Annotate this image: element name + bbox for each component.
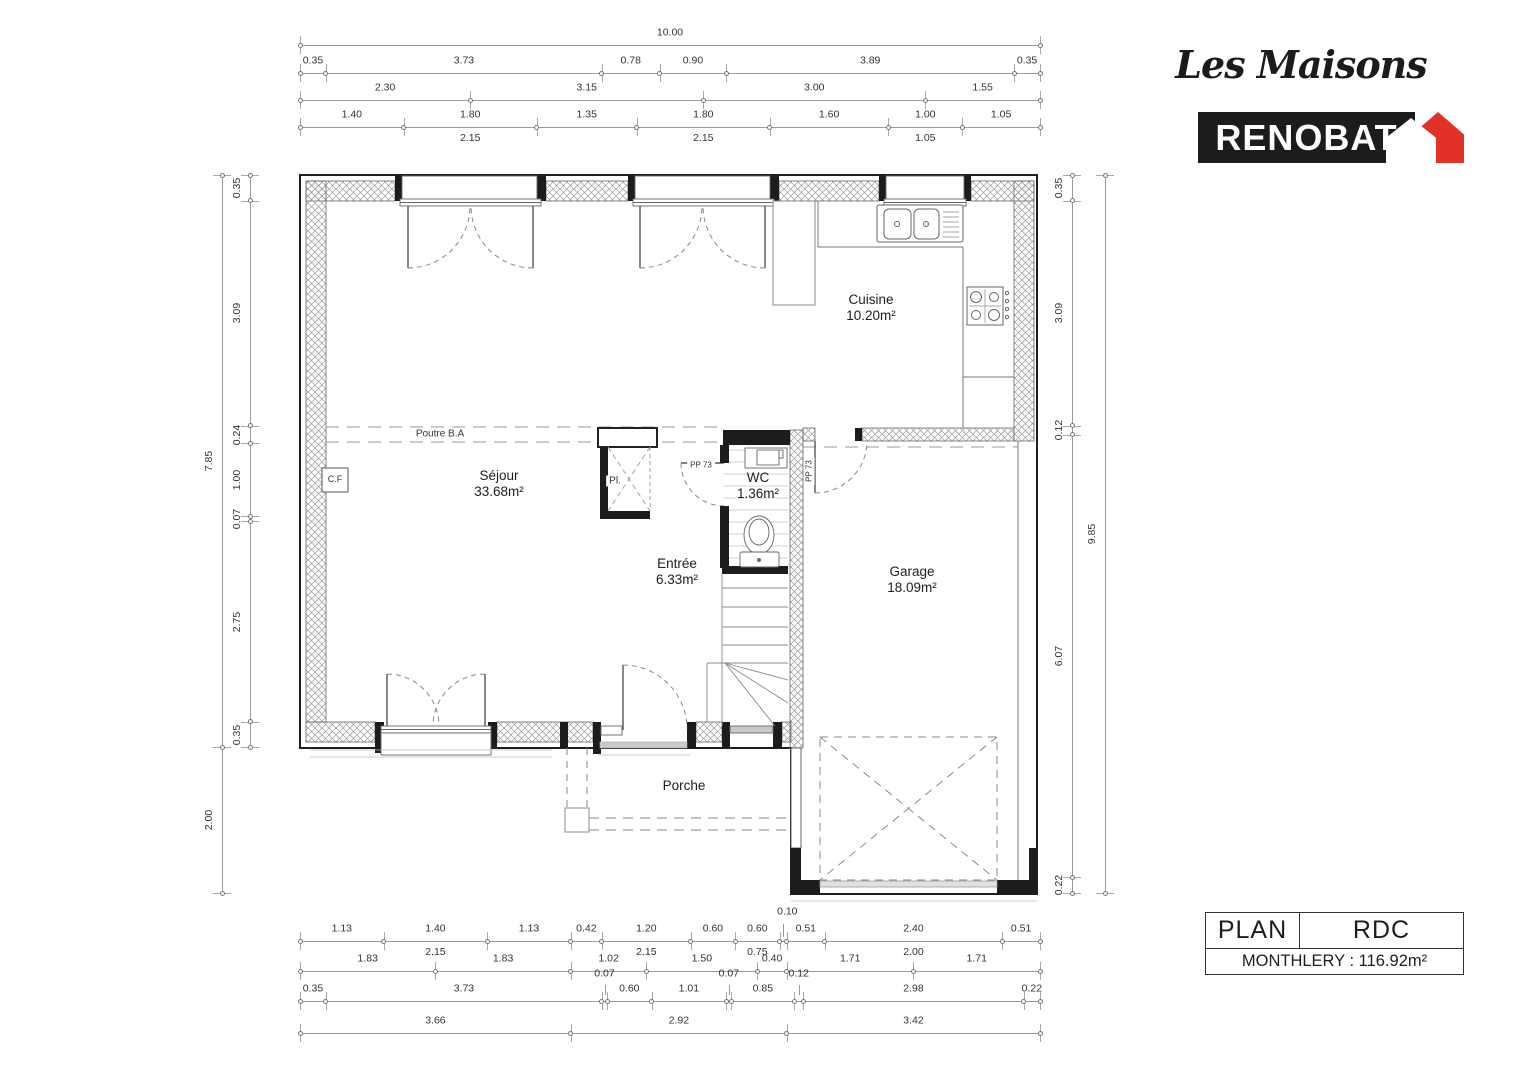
sink-icon <box>877 205 963 242</box>
dim-dot <box>298 71 303 76</box>
dim-label: 2.40 <box>903 924 923 935</box>
dim-chain-line <box>300 45 1040 46</box>
dim-chain-line <box>300 1001 1040 1002</box>
logo-brand-bar: RENOBAT <box>1198 112 1415 163</box>
dim-chain-line <box>1072 175 1073 893</box>
dim-label: 0.24 <box>232 424 243 444</box>
dim-chain-line <box>300 971 1040 972</box>
title-project: MONTHLERY : 116.92m² <box>1206 949 1463 974</box>
room-area: 1.36m² <box>737 486 779 502</box>
dim-label: 1.20 <box>636 924 656 935</box>
dim-dot <box>468 98 473 103</box>
dim-label: 0.60 <box>747 924 767 935</box>
dim-label: 2.98 <box>903 984 923 995</box>
dim-label: 1.35 <box>577 110 597 121</box>
room-name: Cuisine <box>846 292 896 308</box>
dim-dot <box>485 939 490 944</box>
dim-label: 1.40 <box>342 110 362 121</box>
dim-leader <box>799 985 800 995</box>
dim-leader <box>605 985 606 995</box>
dim-label: 3.00 <box>804 83 824 94</box>
dim-label: 1.40 <box>425 924 445 935</box>
title-block-row1: PLAN RDC <box>1206 913 1463 949</box>
dim-label: 1.13 <box>519 924 539 935</box>
logo-brand-text: RENOBAT <box>1215 117 1397 159</box>
dim-chain-line <box>300 127 1040 128</box>
dim-dot <box>644 969 649 974</box>
title-level: RDC <box>1300 913 1463 948</box>
room-label-entree: Entrée6.33m² <box>656 556 698 588</box>
dim-dot <box>248 441 253 446</box>
dim-label: 3.09 <box>1054 303 1065 323</box>
dim-dot <box>298 43 303 48</box>
dim-dot <box>248 198 253 203</box>
dim-dot <box>1103 891 1108 896</box>
dim-dot <box>724 71 729 76</box>
dim-dot <box>1000 939 1005 944</box>
dim-label: 1.50 <box>692 954 712 965</box>
dim-dot <box>1038 98 1043 103</box>
room-label-sejour: Séjour33.68m² <box>474 468 524 500</box>
dim-label: 1.55 <box>972 83 992 94</box>
dim-label: 0.60 <box>703 924 723 935</box>
dim-label: 0.35 <box>232 724 243 744</box>
dim-dot <box>1038 1031 1043 1036</box>
dim-dot <box>248 519 253 524</box>
dim-label: 3.73 <box>454 56 474 67</box>
company-logo: Les Maisons RENOBAT <box>1170 42 1470 172</box>
dim-label: 1.71 <box>967 954 987 965</box>
dim-dot <box>1070 891 1075 896</box>
room-name: WC <box>737 470 779 486</box>
dim-dot <box>220 891 225 896</box>
dim-label: 0.60 <box>619 984 639 995</box>
dim-label: 0.12 <box>789 969 809 980</box>
dim-dot <box>733 939 738 944</box>
dim-dot <box>886 125 891 130</box>
dim-label: 3.09 <box>232 303 243 323</box>
dim-dot <box>248 745 253 750</box>
room-label-garage: Garage18.09m² <box>887 564 937 596</box>
dim-label: 3.89 <box>860 56 880 67</box>
dim-label: 3.73 <box>454 984 474 995</box>
dim-dot <box>298 1031 303 1036</box>
dim-dot <box>777 939 782 944</box>
dim-dot <box>298 125 303 130</box>
dim-label: 7.85 <box>204 451 215 471</box>
dim-label: 1.83 <box>493 954 513 965</box>
dim-label: 0.07 <box>232 509 243 529</box>
dim-leader <box>783 924 784 937</box>
dim-dot <box>433 969 438 974</box>
dim-label: 1.80 <box>460 110 480 121</box>
annotation-cf: C.F <box>325 475 346 485</box>
dim-dot <box>298 939 303 944</box>
room-name: Porche <box>663 778 706 794</box>
dim-label: 0.42 <box>576 924 596 935</box>
dim-dot <box>701 98 706 103</box>
dim-label: 3.15 <box>577 83 597 94</box>
dim-dot <box>755 969 760 974</box>
dim-label: 3.66 <box>425 1016 445 1027</box>
dim-label: 1.13 <box>332 924 352 935</box>
dim-dot <box>1070 173 1075 178</box>
dim-label: 2.92 <box>669 1016 689 1027</box>
floorplan-sheet: Cuisine10.20m²Séjour33.68m²WC1.36m²Entré… <box>0 0 1527 1080</box>
dim-chain-line <box>300 73 1040 74</box>
dim-label: 0.51 <box>796 924 816 935</box>
dim-dot <box>1038 999 1043 1004</box>
dim-label: 1.02 <box>598 954 618 965</box>
dim-label: 3.42 <box>903 1016 923 1027</box>
dim-sublabel: 2.15 <box>636 947 656 958</box>
dim-label: 1.01 <box>679 984 699 995</box>
room-area: 10.20m² <box>846 308 896 324</box>
dim-dot <box>298 98 303 103</box>
dim-label: 0.35 <box>1054 178 1065 198</box>
dim-dot <box>792 999 797 1004</box>
dim-label: 2.30 <box>375 83 395 94</box>
dim-label: 2.00 <box>204 810 215 830</box>
dim-chain-line <box>222 175 223 893</box>
dim-sublabel: 2.15 <box>425 947 445 958</box>
dim-label: 0.90 <box>683 56 703 67</box>
wc-room <box>720 430 790 574</box>
dim-dot <box>1103 173 1108 178</box>
room-name: Garage <box>887 564 937 580</box>
dim-sublabel: 1.05 <box>915 133 935 144</box>
dim-dot <box>1038 939 1043 944</box>
dim-label: 0.35 <box>1017 56 1037 67</box>
dim-label: 1.00 <box>232 470 243 490</box>
dim-chain-line <box>1105 175 1106 893</box>
dim-label: 9.85 <box>1087 524 1098 544</box>
dim-chain-line <box>300 941 1040 942</box>
dim-dot <box>1038 125 1043 130</box>
room-label-wc: WC1.36m² <box>737 470 779 502</box>
room-area: 33.68m² <box>474 484 524 500</box>
dim-label: 0.12 <box>1054 420 1065 440</box>
room-area: 18.09m² <box>887 580 937 596</box>
dim-label: 0.35 <box>303 56 323 67</box>
hob-icon <box>967 287 1009 325</box>
dim-label: 1.71 <box>840 954 860 965</box>
dim-label: 0.07 <box>719 969 739 980</box>
dim-sublabel: 2.00 <box>903 947 923 958</box>
room-label-porche: Porche <box>663 778 706 794</box>
dim-label: 0.78 <box>621 56 641 67</box>
dim-dot <box>1070 875 1075 880</box>
dim-label: 0.10 <box>777 907 797 918</box>
dim-dot <box>1012 71 1017 76</box>
dim-dot <box>911 969 916 974</box>
title-block: PLAN RDC MONTHLERY : 116.92m² <box>1205 912 1464 975</box>
dim-label: 1.83 <box>357 954 377 965</box>
dim-dot <box>1070 198 1075 203</box>
dim-dot <box>1038 43 1043 48</box>
title-doc-type: PLAN <box>1206 913 1300 948</box>
dim-dot <box>605 999 610 1004</box>
dim-label: 0.51 <box>1011 924 1031 935</box>
dim-label: 1.05 <box>991 110 1011 121</box>
dim-dot <box>923 98 928 103</box>
dim-leader <box>729 985 730 995</box>
dim-dot <box>1038 969 1043 974</box>
dim-label: 6.07 <box>1054 646 1065 666</box>
wc-sink-icon <box>745 448 787 468</box>
dim-dot <box>248 173 253 178</box>
room-label-cuisine: Cuisine10.20m² <box>846 292 896 324</box>
annotation-pp73-wc: PP 73 <box>687 462 715 471</box>
dim-dot <box>1070 432 1075 437</box>
dim-sublabel: 2.15 <box>693 133 713 144</box>
room-name: Entrée <box>656 556 698 572</box>
dim-dot <box>220 745 225 750</box>
dim-label: 1.80 <box>693 110 713 121</box>
dim-dot <box>298 999 303 1004</box>
dim-label: 0.40 <box>762 954 782 965</box>
dim-label: 0.35 <box>303 984 323 995</box>
dim-dot <box>248 514 253 519</box>
dim-sublabel: 2.15 <box>460 133 480 144</box>
dim-label: 1.00 <box>915 110 935 121</box>
dim-label: 0.35 <box>232 178 243 198</box>
dim-label: 10.00 <box>657 28 683 39</box>
room-area: 6.33m² <box>656 572 698 588</box>
dim-label: 0.85 <box>753 984 773 995</box>
dim-dot <box>801 999 806 1004</box>
logo-script-text: Les Maisons <box>1170 42 1432 87</box>
dim-dot <box>1038 71 1043 76</box>
dim-dot <box>649 999 654 1004</box>
annotation-poutre: Poutre B.A <box>413 429 467 440</box>
dim-chain-line <box>300 100 1040 101</box>
room-name: Séjour <box>474 468 524 484</box>
dim-label: 0.22 <box>1022 984 1042 995</box>
dim-label: 0.07 <box>594 969 614 980</box>
dim-dot <box>220 173 225 178</box>
dim-dot <box>729 999 734 1004</box>
annotation-placard: Pl. <box>606 476 624 487</box>
dim-dot <box>298 969 303 974</box>
dim-chain-line <box>300 1033 1040 1034</box>
dim-chain-line <box>250 175 251 747</box>
dim-dot <box>724 999 729 1004</box>
dim-dot <box>960 125 965 130</box>
dim-label: 1.60 <box>819 110 839 121</box>
dim-label: 2.75 <box>232 611 243 631</box>
annotation-pp73-garage: PP 73 <box>806 457 815 485</box>
